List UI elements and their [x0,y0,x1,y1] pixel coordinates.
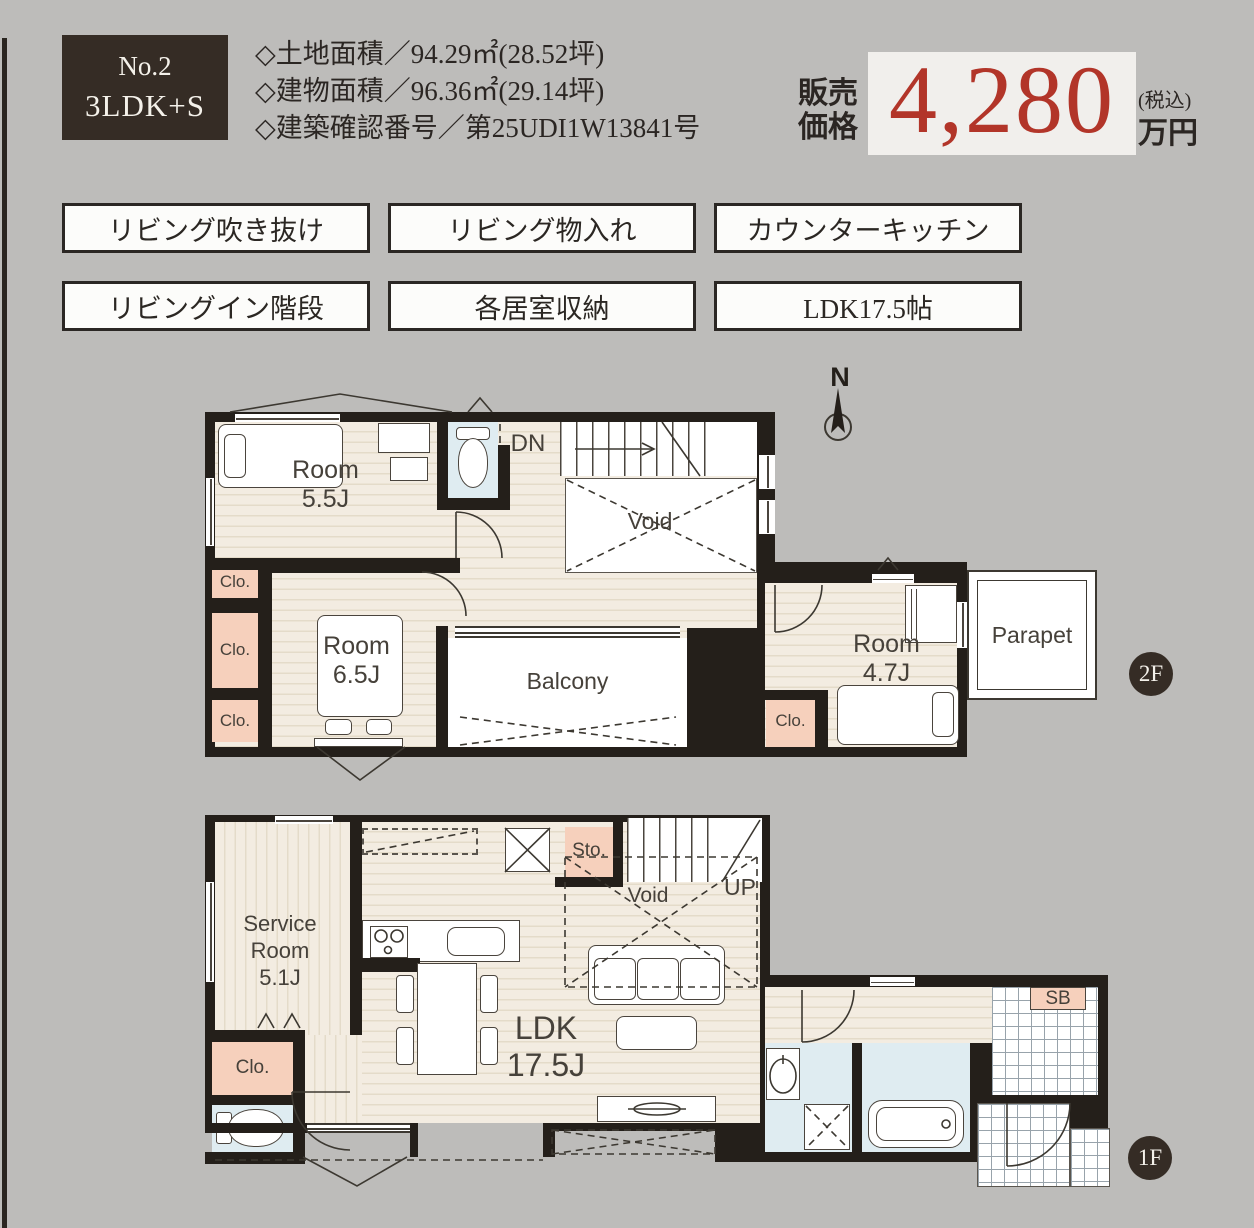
chair-2 [396,1027,414,1065]
chair-1 [396,975,414,1013]
price-amount: 4,280 [868,52,1136,155]
room65-label: Room 6.5J [299,632,414,690]
washing-machine [804,1104,850,1150]
bed-65-board [314,738,403,747]
room47-size: 4.7J [829,659,944,688]
closet-2f-1-label: Clo. [212,572,258,592]
pillow-55 [224,434,246,478]
price-label-top: 販売 [798,77,858,111]
compass-n-label: N [824,362,856,393]
window-2f-hall-2 [759,500,775,534]
window-2f-hall-1 [759,455,775,489]
pillow-47 [932,692,954,737]
window-2f-top [235,414,340,422]
feature-box-5: 各居室収納 [388,281,696,331]
shoe-box-label: SB [1030,988,1086,1010]
chair-3 [480,975,498,1013]
hall-floor-1f [305,1035,362,1123]
closet-2f-2-label: Clo. [212,640,258,660]
floor-badge-1f: 1F [1128,1136,1172,1180]
sliding-door-1f [307,1123,410,1133]
bathtub [868,1100,964,1148]
pillow-65a [325,719,352,735]
ldk-label: LDK 17.5J [494,1010,598,1084]
closet47-wall-right [815,690,828,757]
room55-name: Room [268,456,383,485]
sofa-cushion-1 [594,958,636,1000]
unit-badge: No.2 3LDK+S [62,35,228,140]
dining-table [417,963,477,1075]
void-1f-label: Void [612,884,684,908]
window-47-top [872,574,914,583]
washbasin [766,1048,800,1100]
price-label-bottom: 価格 [798,111,858,145]
spec-land-area: ◇土地面積／94.29㎡(28.52坪) [255,36,700,73]
ldk-name: LDK [494,1010,598,1047]
bottom-wall-b [410,1123,418,1157]
ldk-size: 17.5J [494,1047,598,1084]
room47-name: Room [829,630,944,659]
room55-label: Room 5.5J [268,456,383,514]
service-room-label: Service Room 5.1J [222,910,338,991]
service-room-line3: 5.1J [222,964,338,991]
plan2f-closet-sep1 [205,598,258,613]
pillow-65b [366,719,392,735]
unit-type: 3LDK+S [85,88,205,124]
sofa-cushion-3 [680,958,720,1000]
closet-2f-3-label: Clo. [212,711,258,731]
hall-wall-right [293,1030,305,1164]
stairs-2f-treads [560,422,706,476]
feature-box-3: カウンターキッチン [714,203,1022,253]
desk-55 [378,423,430,453]
porch [977,1103,1070,1187]
bathtub-inner [876,1107,956,1141]
feature-box-4: リビングイン階段 [62,281,370,331]
window-1f-top [275,816,333,824]
spec-building-area: ◇建物面積／96.36㎡(29.14坪) [255,73,700,110]
stove [370,926,408,958]
coffee-table [616,1016,697,1050]
flyer-page: No.2 3LDK+S ◇土地面積／94.29㎡(28.52坪) ◇建物面積／9… [0,0,1254,1228]
wash-bath-sep-a [852,1043,862,1101]
plan2f-closet-sep2 [205,688,258,700]
spec-confirmation-no: ◇建築確認番号／第25UDI1W13841号 [255,110,700,147]
hall-floor-right [765,987,992,1043]
tv-board [597,1096,716,1122]
window-2f-left [206,478,214,546]
stairs-2f-label: DN [504,430,552,458]
plan2f-corner-wall [687,628,775,757]
cupboard [505,828,550,872]
window-1f-left [206,882,214,982]
storage-1f-label: Sto. [563,840,615,862]
toilet1f-bottom [205,1152,305,1164]
price-box: 4,280 [868,52,1136,155]
floor-badge-2f: 2F [1129,652,1173,696]
service-room-line1: Service [222,910,338,937]
sofa-cushion-2 [637,958,679,1000]
kitchen-stub-wall [362,958,420,972]
service-wall-bottom [205,1030,305,1042]
stairs-1f-label: UP [716,874,764,901]
service-room-line2: Room [222,937,338,964]
price-label: 販売 価格 [798,77,858,145]
void-2f-label: Void [608,508,692,535]
feature-box-6: LDK17.5帖 [714,281,1022,331]
closet-2f-4-label: Clo. [766,711,815,731]
room47-label: Room 4.7J [829,630,944,688]
service-wall-right [350,815,362,1040]
feature-box-2: リビング物入れ [388,203,696,253]
left-accent-bar [2,38,7,1228]
window-1f-wing-top [870,977,915,986]
balcony-window [455,626,680,638]
closet47-wall-top [765,690,820,700]
room65-name: Room [299,632,414,661]
chair-55 [390,457,428,481]
parapet-label: Parapet [967,622,1097,649]
stairs-1f-treads [627,818,723,882]
spec-list: ◇土地面積／94.29㎡(28.52坪) ◇建物面積／96.36㎡(29.14坪… [255,36,700,147]
window-47-right [957,602,967,648]
fridge-space [362,828,478,855]
bottom-wall-e [715,1123,770,1162]
bottom-wall-d [543,1123,715,1131]
toilet-bowl-2f [458,438,488,488]
entrance-bottom-wall [986,1095,1098,1103]
price-unit: 万円 [1138,108,1198,152]
kitchen-sink [447,927,505,956]
room65-size: 6.5J [299,661,414,690]
room55-size: 5.5J [268,485,383,514]
feature-box-1: リビング吹き抜け [62,203,370,253]
toilet2f-wall-left [437,422,448,510]
unit-no: No.2 [118,51,171,82]
porch-step [1070,1128,1110,1187]
toilet1f-sep [205,1095,293,1105]
wash-bath-sep-b [852,1132,862,1152]
balcony-wall-left [436,626,448,757]
bottom-wall-a [205,1123,307,1133]
plan2f-closet-wall [258,558,272,747]
balcony-label: Balcony [505,668,630,695]
closet-1f-label: Clo. [212,1057,293,1079]
